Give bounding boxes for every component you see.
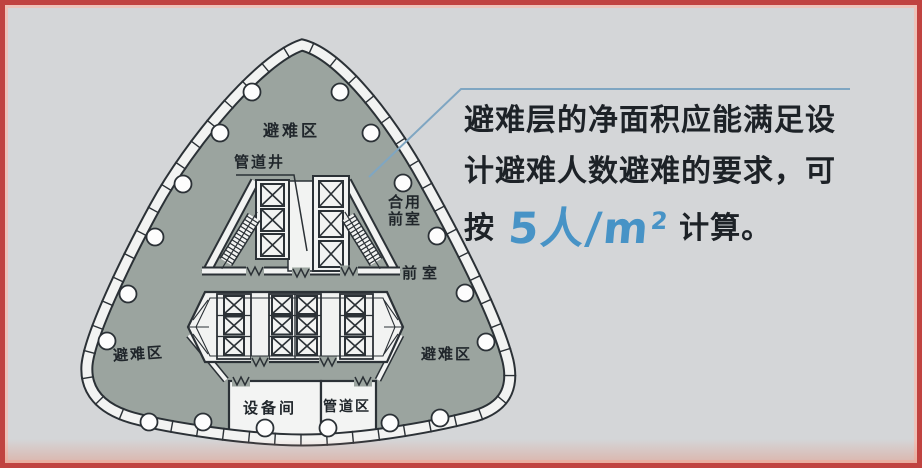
figure-frame: 避难区 管道井 合用 前室 前室 避难区 避难区 设备间 管道区 避难层的净面积… [0,0,922,468]
label-refuge-area-left: 避难区 [112,344,164,364]
label-refuge-area-top: 避难区 [263,122,320,140]
lower-core [188,292,403,362]
label-pipe-shaft: 管道井 [234,154,285,171]
label-equipment-room: 设备间 [243,400,297,417]
label-shared-lobby-line1: 合用 [388,194,422,211]
annotation-line3-suffix: 计算。 [679,203,772,247]
annotation-line1: 避难层的净面积应能满足设 [464,95,904,139]
label-pipe-zone: 管道区 [323,400,371,415]
annotation-text: 避难层的净面积应能满足设 计避难人数避难的要求，可 按 5人/m2 计算。 [464,95,904,256]
label-lobby: 前室 [402,265,442,282]
annotation-line3: 按 5人/m2 计算。 [464,194,904,256]
annotation-line3-prefix: 按 [464,203,495,247]
label-refuge-area-right: 避难区 [421,346,472,363]
annotation-line2: 计避难人数避难的要求，可 [464,146,904,190]
density-highlight: 5人/m2 [506,194,672,256]
density-superscript: 2 [650,207,671,235]
label-shared-lobby-line2: 前室 [388,211,422,228]
